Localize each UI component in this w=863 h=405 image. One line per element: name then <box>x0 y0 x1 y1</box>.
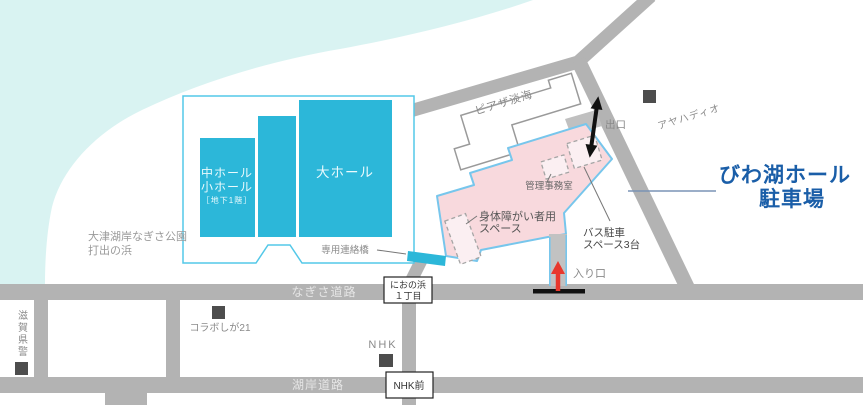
park-label-1: 大津湖岸なぎさ公園 <box>88 229 187 243</box>
collabo-marker <box>212 306 225 319</box>
bus-space-label-1: バス駐車 <box>583 226 625 239</box>
kogan-road-label: 湖岸道路 <box>292 377 344 392</box>
stop-nhkmae-label: NHK前 <box>393 379 424 392</box>
nhk-label: NHK <box>368 339 397 351</box>
police-marker <box>15 362 28 375</box>
bus-space-label-2: スペース3台 <box>583 238 640 251</box>
road-vertical-west-lower <box>105 393 147 405</box>
park-label-2: 打出の浜 <box>88 243 132 257</box>
admin-office-label: 管理事務室 <box>525 180 573 192</box>
hall-medium-label: 中ホール <box>201 165 253 180</box>
road-vertical-west <box>34 300 48 377</box>
stop-box-niono: におの浜 １丁目 <box>384 277 432 303</box>
bridge-label: 専用連絡橋 <box>321 244 369 256</box>
police-label: 滋賀県警 <box>16 309 28 358</box>
parking-title-line2: 駐車場 <box>759 187 825 211</box>
parking-title-line1: びわ湖ホール <box>719 164 851 187</box>
hall-small-label: 小ホール <box>201 180 253 194</box>
hall-large-label: 大ホール <box>316 165 374 180</box>
hall-block-center <box>258 116 296 237</box>
exit-label: 出口 <box>605 118 626 131</box>
collabo-label: コラボしが21 <box>189 321 251 334</box>
stop-niono-label-1: におの浜 <box>390 280 426 290</box>
disabled-space-label-1: 身体障がい者用 <box>479 209 556 223</box>
road-vertical-mid <box>166 300 180 377</box>
nagisa-road-label: なぎさ道路 <box>291 284 356 299</box>
access-map: ピアザ淡海 中ホール 小ホール ［地下1階］ 大ホール 専用連絡橋 管理事務室 … <box>0 0 863 405</box>
hall-basement-label: ［地下1階］ <box>202 195 252 205</box>
entrance-label: 入り口 <box>573 267 606 280</box>
stop-box-nhkmae: NHK前 <box>386 372 433 398</box>
stop-niono-label-2: １丁目 <box>394 291 421 301</box>
nhk-marker <box>379 354 393 367</box>
ayaha-marker <box>643 90 656 103</box>
disabled-space-label-2: スペース <box>479 223 522 235</box>
